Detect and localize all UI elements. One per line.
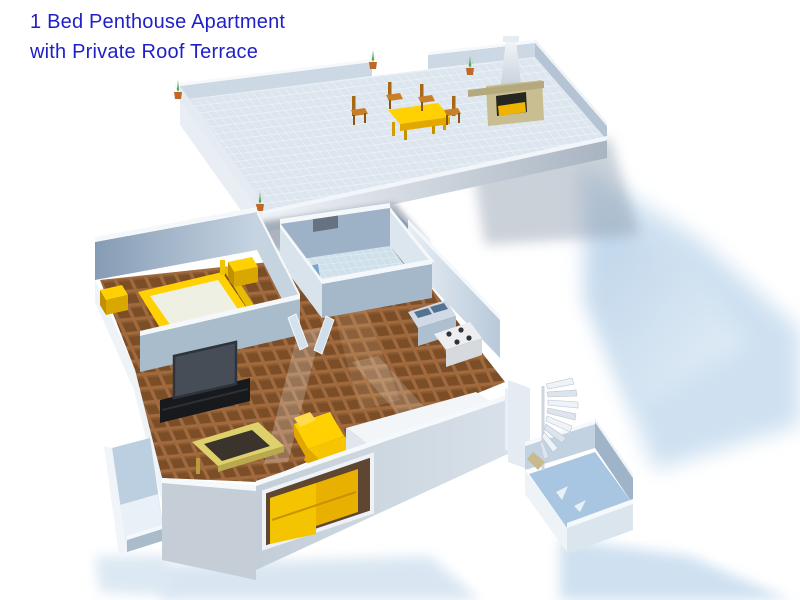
headboard-post bbox=[220, 260, 225, 275]
chair-leg bbox=[353, 115, 355, 125]
shadow-bottom-right bbox=[560, 538, 790, 600]
shadow-balcony bbox=[95, 556, 178, 596]
coffee-table-leg bbox=[196, 458, 200, 474]
table-leg bbox=[392, 122, 395, 136]
apartment-floor bbox=[95, 203, 633, 580]
burner bbox=[466, 335, 471, 340]
floorplan-render: 1 Bed Penthouse Apartment with Private R… bbox=[0, 0, 800, 600]
pot bbox=[369, 62, 377, 69]
title-line-1: 1 Bed Penthouse Apartment bbox=[30, 11, 285, 33]
chair-leg bbox=[389, 100, 391, 109]
burner bbox=[458, 327, 463, 332]
burner bbox=[454, 339, 459, 344]
stair-courtyard bbox=[508, 378, 633, 554]
chair-leg bbox=[421, 102, 423, 111]
stair-step bbox=[547, 390, 577, 397]
burner bbox=[446, 331, 451, 336]
title-line-2: with Private Roof Terrace bbox=[29, 41, 258, 63]
caption: 1 Bed Penthouse Apartment with Private R… bbox=[29, 11, 285, 63]
scene-canvas: 1 Bed Penthouse Apartment with Private R… bbox=[0, 0, 800, 600]
chair-leg bbox=[458, 113, 460, 123]
stair-step bbox=[546, 378, 574, 389]
pot bbox=[466, 68, 474, 75]
nightstand-left bbox=[100, 285, 128, 315]
stair-step bbox=[548, 400, 578, 408]
chimney-top bbox=[503, 36, 519, 42]
nightstand-right bbox=[228, 257, 258, 287]
pot bbox=[174, 92, 182, 99]
chair-leg bbox=[364, 113, 366, 123]
chair-leg bbox=[446, 115, 448, 125]
